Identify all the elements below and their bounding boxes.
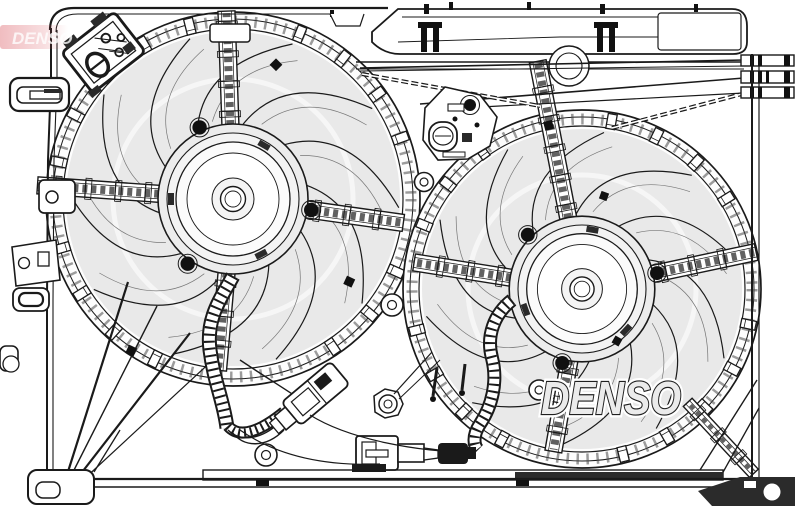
svg-text:DENSO: DENSO [541,372,681,424]
svg-text:DENSO: DENSO [12,29,72,48]
